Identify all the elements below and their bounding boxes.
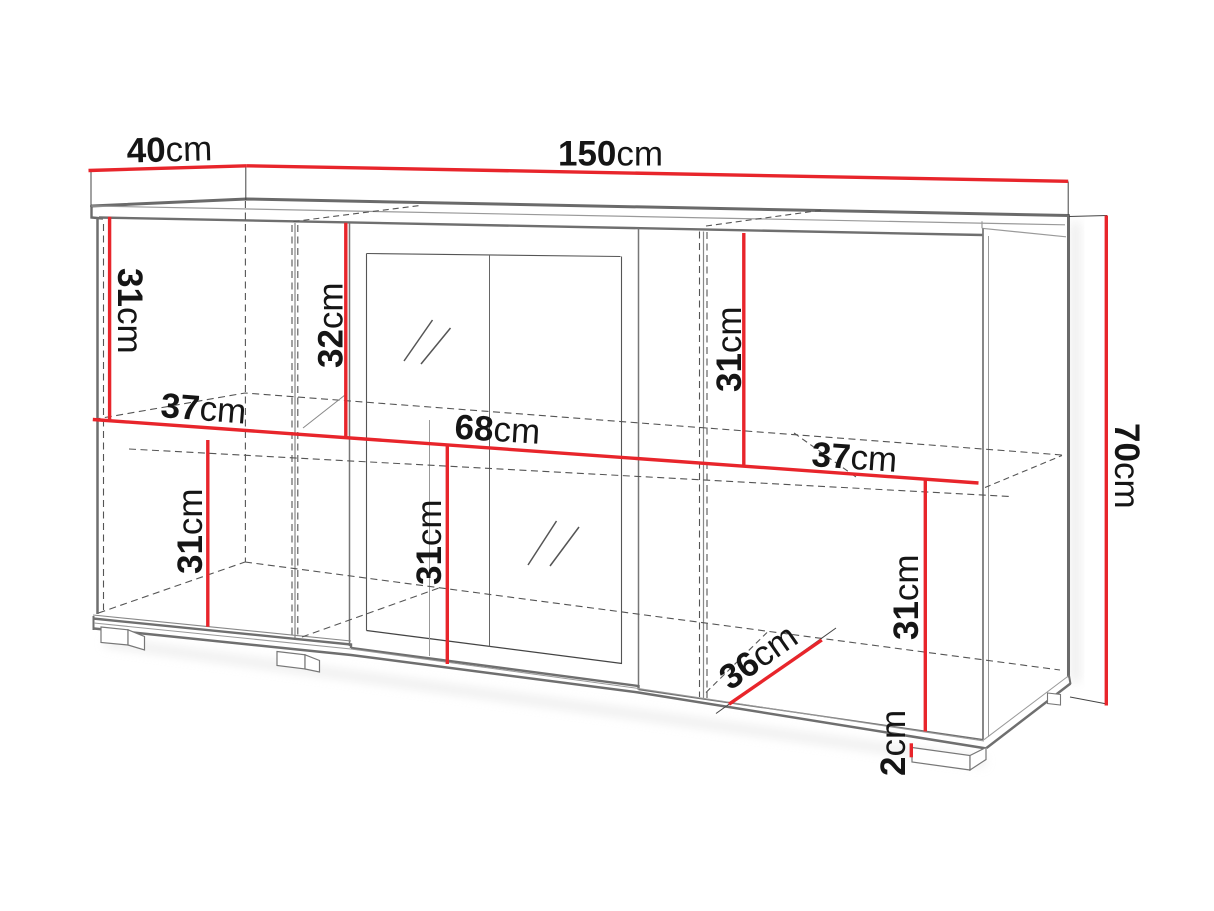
svg-text:68cm: 68cm xyxy=(454,408,542,452)
svg-text:40cm: 40cm xyxy=(126,129,213,170)
svg-text:2cm: 2cm xyxy=(874,710,913,776)
svg-text:37cm: 37cm xyxy=(810,435,898,480)
svg-text:70cm: 70cm xyxy=(1107,423,1146,509)
svg-text:37cm: 37cm xyxy=(159,386,247,432)
svg-text:150cm: 150cm xyxy=(558,135,663,174)
svg-text:31cm: 31cm xyxy=(110,268,149,354)
svg-text:31cm: 31cm xyxy=(171,488,210,574)
svg-text:31cm: 31cm xyxy=(410,499,449,585)
svg-text:31cm: 31cm xyxy=(710,306,749,392)
svg-text:32cm: 32cm xyxy=(312,282,351,368)
svg-text:31cm: 31cm xyxy=(887,554,926,640)
